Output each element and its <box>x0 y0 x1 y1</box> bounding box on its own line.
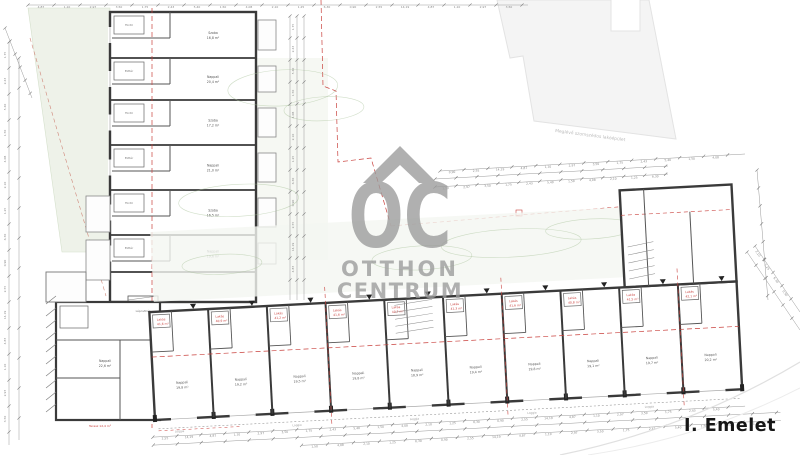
right-block-outline <box>620 185 737 288</box>
dimension-number: 2,10 <box>363 442 370 446</box>
tick <box>24 79 27 82</box>
dimension-number: 0,90 <box>3 260 7 267</box>
dimension-number: 14,19 <box>544 416 553 420</box>
dimension-number: 1,75 <box>623 428 630 432</box>
room-label: Nappali <box>411 368 423 373</box>
watermark-monogram: OC <box>348 166 451 268</box>
balcony <box>258 108 276 137</box>
unit-area-label: 40,7 m² <box>392 309 405 314</box>
terrace-label: Terasz 12,4 m² <box>88 424 112 428</box>
dimension-number: 4,08 <box>246 5 253 9</box>
hatch-line <box>46 320 56 328</box>
dimension-number: 4,08 <box>589 178 596 182</box>
room-label: Nappali <box>293 374 305 379</box>
unit-area-label: 41,6 m² <box>509 303 522 308</box>
floorplan-svg: Meglévő szomszédos lakóépület Szoba16,8 … <box>0 0 800 455</box>
dimension-number: 5,40 <box>353 426 360 430</box>
room-label: Nappali <box>704 353 716 358</box>
unit-area-label: 40,8 m² <box>568 300 581 305</box>
balcony <box>258 198 276 227</box>
dimension-number: 1,25 <box>763 263 770 271</box>
hatch-line <box>46 332 56 340</box>
dimension-number: 1,75 <box>291 24 295 31</box>
tick <box>790 317 793 320</box>
room-label: Nappali <box>207 75 219 79</box>
unit-area-label: 41,3 m² <box>450 306 463 311</box>
entry-door-marker <box>542 285 548 290</box>
dimension-number: 1,75 <box>616 161 623 165</box>
hatch-line <box>46 380 56 388</box>
dimension-number: 2,97 <box>463 185 470 189</box>
dimension-number: 2,10 <box>272 5 279 9</box>
dimension-number: 1,25 <box>389 440 396 444</box>
dimension-number: 3,50 <box>641 411 648 415</box>
room-area: 19,4 m² <box>470 370 483 375</box>
dimension-number: 1,75 <box>505 183 512 187</box>
room-label: Nappali <box>235 377 247 382</box>
tick <box>745 250 748 253</box>
dimension-number: 2,43 <box>291 46 295 53</box>
dimension-number: 2,97 <box>480 5 487 9</box>
floor-title: I. Emelet <box>684 416 776 436</box>
room-area: 19,5 m² <box>293 379 306 384</box>
unit-area-label: 41,2 m² <box>274 315 287 320</box>
room-label: Szoba <box>208 31 218 35</box>
dimension-number: 1,25 <box>298 5 305 9</box>
room-area: 19,8 m² <box>352 376 365 381</box>
tick <box>29 92 32 95</box>
dimension-number: 2,43 <box>3 78 7 85</box>
dimension-number: 14,19 <box>492 435 501 439</box>
dimension-number: 1,50 <box>291 90 295 97</box>
tick <box>780 284 783 287</box>
dimension-number: 1,10 <box>545 432 552 436</box>
service-room-label: Előtér <box>125 69 134 73</box>
dimension-number: 14,19 <box>3 311 7 320</box>
dimension-number: 0,90 <box>497 419 504 423</box>
unit-area-label: 40,9 m² <box>216 319 229 324</box>
dimension-number: 4,08 <box>291 112 295 119</box>
room-area: 22,6 m² <box>99 364 112 368</box>
hatch-line <box>46 356 56 364</box>
service-room-label: Előtér <box>125 246 134 250</box>
dimension-number: 2,10 <box>291 134 295 141</box>
dimension-number: 2,43 <box>168 5 175 9</box>
entry-door-marker <box>307 298 313 303</box>
room-label: Szoba <box>208 119 218 123</box>
entry-door-marker <box>484 288 490 293</box>
dimension-number: 14,19 <box>185 435 194 439</box>
dimension-number: 4,08 <box>3 156 7 163</box>
tick <box>772 290 775 293</box>
room-label: Szoba <box>208 209 218 213</box>
dimension-number: 2,97 <box>90 5 97 9</box>
room-area: 16,8 m² <box>207 36 220 40</box>
dimension-number: 2,97 <box>568 163 575 167</box>
tick <box>13 53 16 56</box>
dimension-number: 2,55 <box>521 417 528 421</box>
room-label: Nappali <box>587 359 599 364</box>
dimension-number: 4,87 <box>38 5 45 9</box>
dimension-number: 0,90 <box>350 5 357 9</box>
room-area: 19,8 m² <box>528 367 541 372</box>
dimension-number: 5,40 <box>291 68 295 75</box>
dimension-number: 2,10 <box>610 177 617 181</box>
balcony <box>258 66 276 92</box>
red-dash <box>159 427 241 431</box>
dimension-number: 3,50 <box>592 162 599 166</box>
dimension-number: 14,19 <box>496 167 505 171</box>
dimension-number: 3,50 <box>281 430 288 434</box>
dimension-number: 2,55 <box>473 169 480 173</box>
room-label: Nappali <box>99 359 111 363</box>
entrance-porch <box>46 272 86 302</box>
service-room-label: Fürdő <box>125 23 133 27</box>
dimension-number: 4,87 <box>569 415 576 419</box>
dimension-number: 5,40 <box>675 425 682 429</box>
tick <box>754 264 757 267</box>
dimension-number: 3,50 <box>484 184 491 188</box>
room-label: Nappali <box>352 371 364 376</box>
column <box>153 415 157 422</box>
dimension-number: 3,50 <box>506 5 513 9</box>
dimension-number: 5,40 <box>194 5 201 9</box>
dimension-number: 6,30 <box>3 234 7 241</box>
dimension-number: 1,10 <box>3 364 7 371</box>
dimension-number: 6,30 <box>324 5 331 9</box>
dimension-number: 14,19 <box>291 243 295 252</box>
service-room-label: Fürdő <box>125 111 133 115</box>
room-area: 18,9 m² <box>411 373 424 378</box>
dimension-number: 1,25 <box>291 156 295 163</box>
room-area: 21,0 m² <box>207 169 220 173</box>
dimension-number: 14,19 <box>401 5 410 9</box>
dimension-number: 6,30 <box>415 439 422 443</box>
dimension-number: 2,43 <box>526 181 533 185</box>
dimension-number: 4,87 <box>209 434 216 438</box>
dimension-number: 2,43 <box>689 408 696 412</box>
dimension-number: 4,87 <box>3 338 7 345</box>
loggia-label: Loggia <box>645 404 655 408</box>
dimension-number: 1,75 <box>305 429 312 433</box>
dimension-number: 2,97 <box>257 431 264 435</box>
dimension-number: 6,30 <box>652 174 659 178</box>
loggia-label: Loggia <box>292 423 302 427</box>
room-label: Nappali <box>207 164 219 168</box>
neighbor-outline <box>497 0 676 139</box>
service-room-label: Előtér <box>125 156 134 160</box>
dimension-number: 3,50 <box>597 429 604 433</box>
room-area: 20,4 m² <box>207 80 220 84</box>
dimension-number: 5,40 <box>3 104 7 111</box>
hatch-line <box>46 404 56 412</box>
dimension-number: 1,10 <box>454 5 461 9</box>
dimension-number: 4,08 <box>401 424 408 428</box>
dimension-number: 4,87 <box>521 166 528 170</box>
dimension-number: 1,75 <box>3 52 7 59</box>
loggia-label: Loggia <box>410 417 420 421</box>
tick <box>789 297 792 300</box>
dimension-number: 4,08 <box>337 443 344 447</box>
room-area: 19,1 m² <box>587 364 600 369</box>
unit-area-label: 41,5 m² <box>627 297 640 302</box>
column <box>740 384 744 391</box>
room-area: 19,2 m² <box>235 382 248 387</box>
dimension-number: 0,90 <box>781 289 788 297</box>
room-label: Nappali <box>176 380 188 385</box>
dimension-number: 1,25 <box>449 421 456 425</box>
dimension-number: 2,55 <box>376 5 383 9</box>
room-label: Nappali <box>528 362 540 367</box>
service-room-label: Fürdő <box>125 201 133 205</box>
dimension-number: 4,87 <box>519 433 526 437</box>
room-area: 19,7 m² <box>646 361 659 366</box>
floorplan-page: Meglévő szomszédos lakóépület Szoba16,8 … <box>0 0 800 455</box>
dimension-number: 2,55 <box>162 436 169 440</box>
wall-hatch <box>46 296 56 412</box>
dimension-number: 2,10 <box>3 182 7 189</box>
dimension-number: 1,10 <box>64 5 71 9</box>
tick <box>771 271 774 274</box>
dimension-number: 5,40 <box>713 407 720 411</box>
terrace <box>86 240 110 280</box>
dimension-number: 2,43 <box>640 159 647 163</box>
dimension-number: 1,50 <box>377 425 384 429</box>
dimension-number: 6,30 <box>772 276 779 284</box>
dimension-number: 4,08 <box>712 155 719 159</box>
dimension-number: 4,87 <box>291 266 295 273</box>
room-area: 17,2 m² <box>207 124 220 128</box>
entry-door-marker <box>190 304 196 309</box>
hatch-line <box>46 344 56 352</box>
dimension-number: 6,30 <box>291 178 295 185</box>
dimension-number: 6,30 <box>473 420 480 424</box>
dimension-number: 0,90 <box>441 438 448 442</box>
tick <box>753 244 756 247</box>
entry-door-marker <box>249 301 255 306</box>
dimension-number: 1,50 <box>220 5 227 9</box>
room-label: Nappali <box>646 356 658 361</box>
dimension-number: 1,10 <box>544 165 551 169</box>
dimension-number: 1,10 <box>593 414 600 418</box>
dimension-number: 1,50 <box>3 130 7 137</box>
watermark-otthon-centrum: OC OTTHON CENTRUM <box>337 146 463 303</box>
hatch-line <box>46 308 56 316</box>
dimension-number: 1,50 <box>568 179 575 183</box>
tick <box>781 303 784 306</box>
dimension-number: 3,50 <box>116 5 123 9</box>
balcony <box>258 20 276 50</box>
dimension-number: 2,55 <box>291 222 295 229</box>
dimension-number: 1,50 <box>688 157 695 161</box>
dimension-number: 0,90 <box>291 200 295 207</box>
watermark-brand-top: OTTHON <box>341 257 459 281</box>
dimension-number: 5,40 <box>664 158 671 162</box>
dimension-number: 3,50 <box>3 416 7 423</box>
entry-door-marker <box>601 282 607 287</box>
dimension-number: 2,97 <box>617 412 624 416</box>
dimension-number: 2,55 <box>467 436 474 440</box>
unit-area-label: 42,1 m² <box>685 294 698 299</box>
dimension-number: 2,10 <box>425 422 432 426</box>
hatch-line <box>46 392 56 400</box>
terrace <box>86 196 110 232</box>
dimension-number: 1,25 <box>3 208 7 215</box>
room-label: Nappali <box>470 365 482 370</box>
loggia-label: Loggia <box>527 411 537 415</box>
neighbor-building: Meglévő szomszédos lakóépület <box>497 0 676 143</box>
dimension-number: 1,25 <box>631 176 638 180</box>
unit-area-label: 41,6 m² <box>157 322 170 327</box>
dimension-number: 2,97 <box>571 431 578 435</box>
dimension-number: 1,75 <box>665 410 672 414</box>
tick <box>8 39 11 42</box>
watermark-brand-bottom: CENTRUM <box>337 279 463 303</box>
dimension-number: 5,40 <box>547 180 554 184</box>
tick <box>3 26 6 29</box>
dimension-number: 2,55 <box>3 286 7 293</box>
room-area: 19,8 m² <box>176 385 189 390</box>
dimension-number: 2,43 <box>329 427 336 431</box>
balcony <box>258 153 276 182</box>
dimension-number: 1,10 <box>233 432 240 436</box>
dimension-number: 1,75 <box>142 5 149 9</box>
dimension-number: 4,87 <box>428 5 435 9</box>
unit-area-label: 41,6 m² <box>333 312 346 317</box>
hatch-line <box>46 368 56 376</box>
dimension-number: 2,97 <box>3 390 7 397</box>
dimension-number: 1,50 <box>311 444 318 448</box>
room-area: 20,2 m² <box>704 357 717 362</box>
dimension-number: 2,10 <box>754 250 761 258</box>
